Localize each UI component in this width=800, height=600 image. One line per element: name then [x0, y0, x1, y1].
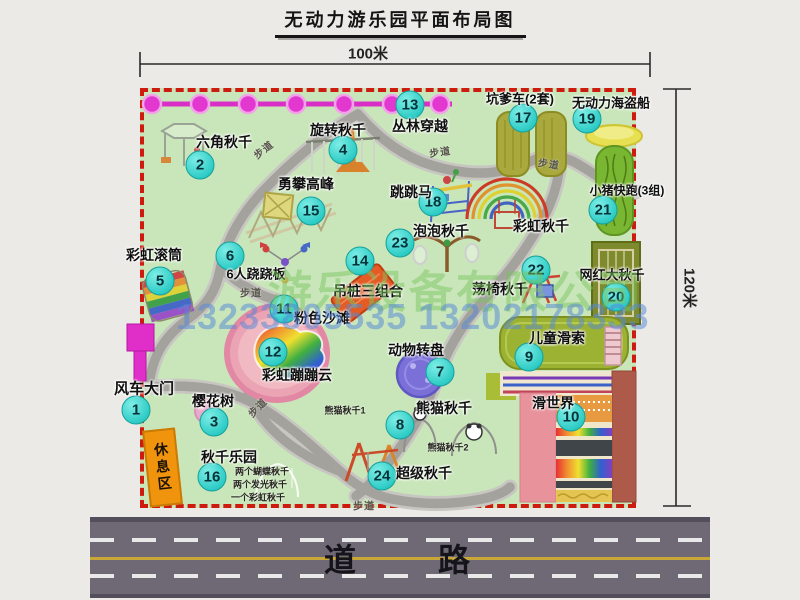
page-title: 无动力游乐园平面布局图 [0, 6, 800, 38]
attraction-number-badge: 15 [297, 197, 326, 226]
attraction-label: 熊猫秋千 [416, 398, 472, 418]
trail-label: 步道 [353, 498, 375, 513]
sub-label: 熊猫秋千2 [427, 441, 468, 454]
attraction-label: 丛林穿越 [392, 116, 448, 136]
trail-label: 步道 [537, 154, 561, 172]
road: 道 路 [90, 517, 710, 598]
attraction-label: 坑爹车(2套) [486, 89, 554, 108]
attraction-label: 六角秋千 [196, 132, 252, 152]
attraction-number-badge: 12 [259, 338, 288, 367]
road-label: 道 路 [90, 517, 710, 598]
attraction-label: 彩虹秋千 [513, 216, 569, 236]
attraction-number-badge: 5 [146, 267, 175, 296]
attraction-label: 泡泡秋千 [413, 221, 469, 241]
attraction-number-badge: 3 [200, 408, 229, 437]
attraction-label: 跳跳马 [390, 182, 432, 202]
attraction-label: 旋转秋千 [310, 120, 366, 140]
attraction-label: 彩虹滚筒 [126, 245, 182, 265]
sub-label: 两个蝴蝶秋千 [235, 465, 289, 478]
attraction-label: 勇攀高峰 [278, 174, 334, 194]
page-title-text: 无动力游乐园平面布局图 [275, 6, 526, 38]
attraction-number-badge: 1 [122, 396, 151, 425]
watermark-phone-text: 13233805535 13202178333 [176, 296, 649, 338]
attraction-number-badge: 8 [386, 411, 415, 440]
attraction-label: 滑世界 [532, 393, 574, 413]
width-dimension-label: 100米 [348, 43, 388, 64]
attraction-label: 樱花树 [192, 391, 234, 411]
attraction-label: 超级秋千 [396, 463, 452, 483]
attraction-label: 风车大门 [114, 378, 174, 399]
attraction-number-badge: 24 [368, 462, 397, 491]
sub-label: 两个发光秋千 [233, 478, 287, 491]
attraction-number-badge: 17 [509, 104, 538, 133]
attraction-label: 彩虹蹦蹦云 [262, 365, 332, 385]
attraction-label: 小猪快跑(3组) [590, 182, 665, 199]
attraction-number-badge: 21 [589, 196, 618, 225]
attraction-label: 动物转盘 [388, 340, 444, 360]
attraction-number-badge: 2 [186, 151, 215, 180]
trail-label: 步道 [428, 142, 452, 160]
sub-label: 熊猫秋千1 [324, 404, 365, 417]
attraction-label: 无动力海盗船 [572, 93, 650, 112]
attraction-number-badge: 7 [426, 358, 455, 387]
height-dimension-label: 120米 [680, 268, 701, 308]
park-layout-canvas: 无动力游乐园平面布局图 [0, 0, 800, 600]
sub-label: 一个彩虹秋千 [231, 491, 285, 504]
attraction-number-badge: 23 [386, 229, 415, 258]
